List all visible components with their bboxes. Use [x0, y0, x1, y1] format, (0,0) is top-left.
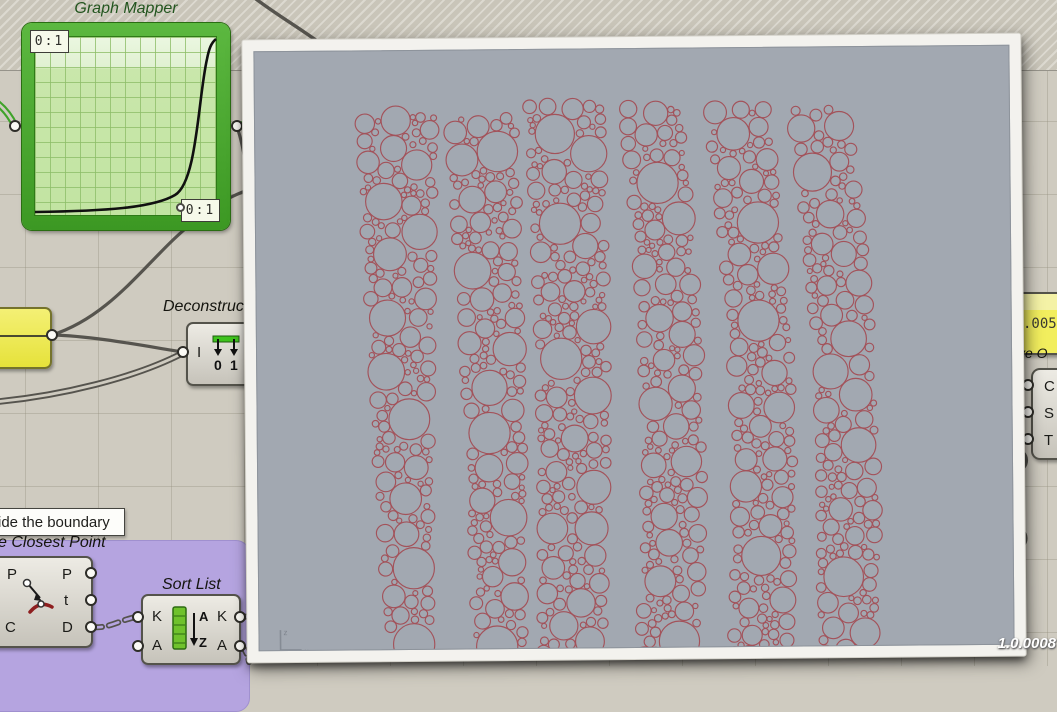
- cp-output-p-label: P: [62, 566, 72, 583]
- sl-input-a-label: A: [152, 637, 162, 654]
- graph-mapper-input-node[interactable]: [9, 120, 21, 132]
- graph-domain-chip-top: 0:1: [30, 30, 69, 53]
- viewport-content[interactable]: z x: [253, 45, 1014, 652]
- closest-point-title: e Closest Point: [0, 534, 106, 552]
- closest-point-icon: [18, 576, 60, 622]
- value-panel-text: .005: [1023, 316, 1057, 332]
- cp-output-t-node[interactable]: [85, 594, 97, 606]
- cp-output-d-node[interactable]: [85, 621, 97, 633]
- sl-input-k-label: K: [152, 608, 162, 625]
- graph-mapper-plot[interactable]: [34, 36, 217, 216]
- tooltip-text: ide the boundary: [0, 514, 110, 531]
- closest-point-component[interactable]: P C P t D: [0, 556, 93, 648]
- cst-input-s-label: S: [1044, 405, 1054, 422]
- cp-output-p-node[interactable]: [85, 567, 97, 579]
- rhino-viewport-overlay[interactable]: z x: [241, 33, 1026, 664]
- deconstruct-input-node[interactable]: [177, 346, 189, 358]
- sort-list-title: Sort List: [162, 576, 221, 594]
- wire-slider-to-deconstruct[interactable]: [52, 335, 183, 352]
- deconstruct-title: Deconstruct: [163, 298, 248, 316]
- graph-mapper-component[interactable]: 0:1 0:1: [22, 23, 230, 230]
- svg-text:Z: Z: [199, 635, 207, 650]
- cp-input-p-label: P: [7, 566, 17, 583]
- cst-input-t-label: T: [1044, 432, 1053, 449]
- slider-output-node[interactable]: [46, 329, 58, 341]
- graph-handle[interactable]: [176, 203, 185, 212]
- sort-list-icon: A Z: [170, 603, 216, 655]
- svg-text:1: 1: [230, 357, 238, 373]
- graph-mapper-curve: [35, 37, 217, 215]
- number-slider[interactable]: [0, 307, 52, 369]
- sl-output-a-label: A: [217, 637, 227, 654]
- sl-output-k-node[interactable]: [234, 611, 246, 623]
- cp-output-d-label: D: [62, 619, 73, 636]
- sl-output-k-label: K: [217, 608, 227, 625]
- graph-domain-chip-bottom: 0:1: [181, 199, 220, 222]
- sl-input-a-node[interactable]: [132, 640, 144, 652]
- deconstruct-input-label: I: [197, 344, 201, 361]
- sl-input-k-node[interactable]: [132, 611, 144, 623]
- svg-text:0: 0: [214, 357, 222, 373]
- cst-input-c-label: C: [1044, 378, 1055, 395]
- svg-text:A: A: [199, 609, 209, 624]
- circle-packing-svg: [254, 46, 1014, 652]
- slider-rail: [0, 335, 50, 337]
- svg-text:z: z: [283, 628, 287, 637]
- tooltip: ide the boundary: [0, 508, 125, 536]
- deconstruct-icon: 0 1: [207, 331, 247, 375]
- version-badge: 1.0.0008: [998, 635, 1056, 652]
- cp-output-t-label: t: [64, 592, 68, 609]
- sort-list-component[interactable]: K A K A A Z: [141, 594, 241, 665]
- cp-input-c-label: C: [5, 619, 16, 636]
- sl-output-a-node[interactable]: [234, 640, 246, 652]
- svg-text:x: x: [305, 647, 309, 651]
- axis-indicator-icon: z x: [273, 626, 313, 651]
- graph-mapper-title: Graph Mapper: [22, 0, 230, 18]
- cst-component[interactable]: C S T: [1031, 368, 1057, 460]
